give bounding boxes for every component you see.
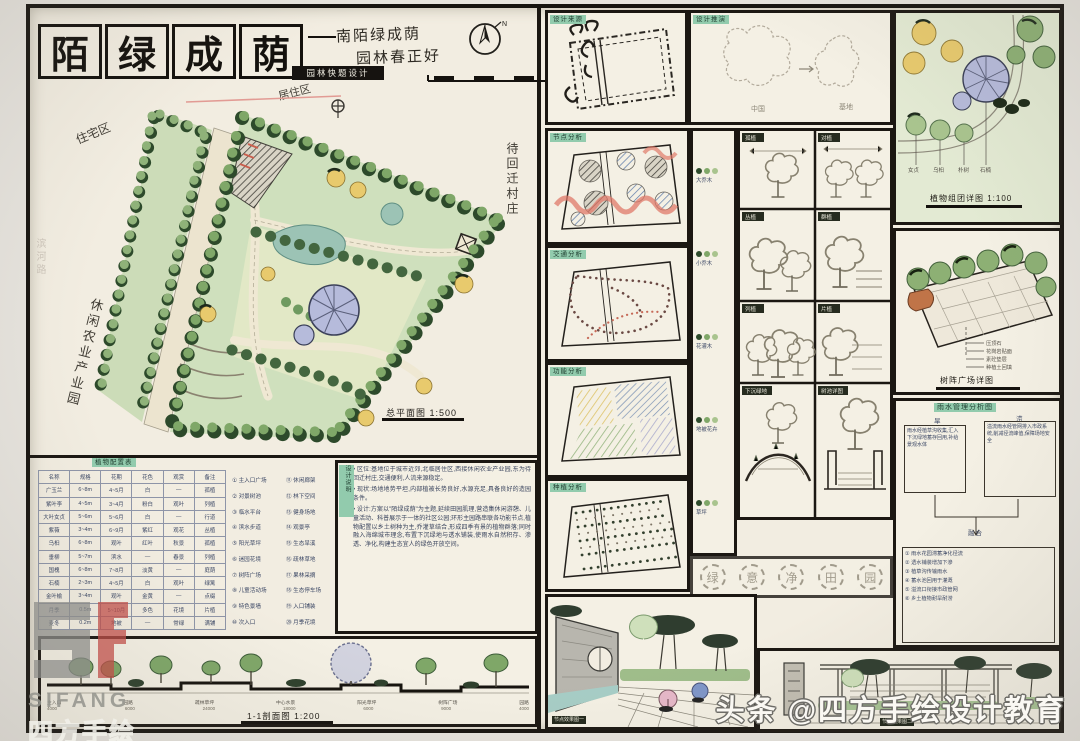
legend-item: ⑭ 观景亭 [286,523,334,531]
svg-text:树池详图: 树池详图 [821,387,844,395]
plant-table-row: 国槐6~8m7~8月淡黄—庭荫 [39,563,226,576]
analysis-panel-planting: 种植分析 [545,478,690,592]
title-char-2: 绿 [105,24,169,79]
analysis-panel-nodes: 节点分析 [545,128,690,245]
tree-study-grid: 孤植 对植 丛植 群植 列植 片植 下沉绿地 树池详图 [737,128,893,520]
title-dash [308,36,336,38]
plant-key-label: 大乔木 [696,176,731,184]
plant-table-row: 紫薇3~4m6~9月紫红观花丛植 [39,524,226,537]
svg-text:住宅区: 住宅区 [74,119,113,146]
plant-table-row: 紫叶李4~5m3~4月粉白观叶列植 [39,497,226,510]
plant-table-title: 植物配置表 [92,458,136,467]
svg-text:对植: 对植 [821,134,833,142]
design-source-panel: 设计来源 [545,10,688,125]
keyword-4: 田 [818,564,844,590]
svg-text:乌桕: 乌桕 [933,166,945,174]
legend-list-left: ① 主入口广场② 对景树池③ 临水平台④ 滨水步道⑤ 阳光草坪⑥ 迷园花境⑦ 树… [232,476,282,626]
plant-key-label: 小乔木 [696,259,731,267]
plant-key-group: 小乔木 [696,251,731,267]
keyword-3: 净 [778,564,804,590]
axon-title: 树阵广场详图 [940,375,994,386]
master-plan: 住宅区 [36,92,541,454]
legend-item: ④ 滨水步道 [232,523,282,531]
flow-arrows [896,495,1059,555]
svg-text:石楠: 石楠 [980,166,992,174]
sifang-logo-cn: 四方手绘 [28,713,178,741]
design-notes-panel: 设计说明 • 区位:基地位于城市近郊,北临居住区,西接休闲农业产业园,东为待回迁… [335,460,538,634]
legend-item: ① 主入口广场 [232,476,282,484]
plant-detail-underline [926,205,1022,208]
flow-title: 雨水管理分析图 [934,403,996,412]
design-evolution-panel: 设计推演 中国 基地 [688,10,893,125]
section-label: 中心水景 [276,699,295,706]
plant-detail-panel: 女贞 乌桕 朴树 石楠 植物组团详图 1:100 [893,10,1062,225]
sifang-logo-text: SIFANG [28,689,178,713]
board-photo: 陌 绿 成 荫 南陌绿成荫 园林春正好 园林快题设计 居住区 N [0,0,1080,741]
flow-panel: 雨水管理分析图 旱 涝 雨水经植草沟收集,汇入下沉绿地蓄存回用,补给景观水体 溢… [893,398,1062,648]
legend-item: ⑨ 特色景墙 [232,602,282,610]
legend-list-right: ⑪ 休闲廊架⑫ 林下空间⑬ 健身场地⑭ 观景亭⑮ 生态旱溪⑯ 疏林草地⑰ 果林采… [286,476,334,626]
design-note: • 区位:基地位于城市近郊,北临居住区,西接休闲农业产业园,东为待回迁村庄,交通… [353,466,531,483]
sifang-logo-mark [28,596,132,684]
plant-table-row: 大叶女贞5~6m5~6月白—行道 [39,510,226,523]
plant-key-strip: 大乔木小乔木花灌木地被花卉草坪 [690,128,737,556]
flow-note: ② 透水铺装增加下渗 [905,559,1052,568]
drawing-board: 陌 绿 成 荫 南陌绿成荫 园林春正好 园林快题设计 居住区 N [26,4,1064,733]
flow-notes-box: ① 雨水花园滞蓄净化径流② 透水铺装增加下渗③ 植草沟传输雨水④ 蓄水池回用于灌… [902,547,1055,643]
legend-item: ⑥ 迷园花境 [232,555,282,563]
legend-item: ⑰ 果林采摘 [286,571,334,579]
svg-text:花岗岩贴面: 花岗岩贴面 [986,347,1012,355]
analysis-panel-function: 功能分析 [545,362,690,478]
legend-item: ⑱ 生态停车场 [286,586,334,594]
design-evolution-tag: 设计推演 [693,15,729,24]
plant-key-group: 地被花卉 [696,417,731,433]
perspective-left-tag: 节点效果图一 [552,716,586,724]
title-char-1: 陌 [38,24,102,79]
section-dim: 4000 [519,706,529,711]
planting-diagram [548,481,687,589]
title-char-3: 成 [172,24,236,79]
analysis-tag-planting: 种植分析 [550,483,586,492]
plant-key-label: 花灌木 [696,342,731,350]
section-label: 园路 [519,699,529,706]
flow-box-b: 溢流雨水经管网排入市政系统,削减径流峰值,保障场地安全 [984,421,1056,497]
section-dim: 9000 [441,706,451,711]
plant-table-row: 石楠2~3m4~5月白观叶绿篱 [39,577,226,590]
section-label: 树阵广场 [438,699,457,706]
plant-table-header: 花期 [101,471,132,484]
legend-item: ⑧ 儿童活动场 [232,586,282,594]
plant-table-header: 备注 [194,471,225,484]
flow-note: ⑤ 溢流口衔接市政管网 [905,586,1052,595]
keyword-5: 园 [857,564,883,590]
map-outlines: 中国 基地 [691,13,890,122]
legend-item: ⑲ 入口铺装 [286,602,334,610]
plant-table-row: 垂柳5~7m滨水—春景列植 [39,550,226,563]
svg-text:中国: 中国 [751,104,765,113]
design-note: • 现状:场地地势平坦,内部植被长势良好,水源充足,具备良好的造园条件。 [353,486,531,503]
legend-item: ⑳ 月季花境 [286,618,334,626]
subtitle-line1: 南陌绿成荫 [336,23,422,47]
flow-merge: 融合 [968,527,983,537]
plan-title-underline [382,418,464,421]
legend-item: ⑫ 林下空间 [286,492,334,500]
pattern-sketch [548,13,685,122]
svg-text:种植土回填: 种植土回填 [986,363,1012,371]
north-compass-icon: N [466,18,510,60]
plant-table-header: 观赏 [163,471,194,484]
keyword-strip: 绿 意 净 田 园 [690,556,893,598]
svg-text:下沉绿地: 下沉绿地 [745,387,768,395]
design-note: • 设计:方案以"陌绿成荫"为主题,延续田园肌理,营造集休闲游憩、儿童活动、科普… [353,506,531,549]
plant-table-header: 花色 [132,471,163,484]
legend-item: ⑪ 休闲廊架 [286,476,334,484]
flow-note: ③ 植草沟传输雨水 [905,568,1052,577]
plan-label-right: 待回迁村庄 [504,142,521,282]
legend-item: ⑦ 树阵广场 [232,571,282,579]
section-dim: 6000 [363,706,373,711]
scale-bar [426,72,560,86]
svg-text:素砼垫层: 素砼垫层 [986,355,1007,363]
legend-item: ⑩ 次入口 [232,618,282,626]
flow-note: ⑥ 乡土植物耐旱耐涝 [905,595,1052,604]
watermark-credit: 头条 @四方手绘设计教育 [716,687,1066,729]
legend-item: ⑤ 阳光草坪 [232,539,282,547]
plant-key-label: 草坪 [696,508,731,516]
section-title-underline [241,721,333,724]
plant-table-row: 广玉兰6~8m4~5月白—孤植 [39,484,226,497]
tree-study-sketches: 孤植 对植 丛植 群植 列植 片植 下沉绿地 树池详图 [740,131,890,517]
analysis-tag-nodes: 节点分析 [550,133,586,142]
flow-note: ④ 蓄水池回用于灌溉 [905,577,1052,586]
keyword-2: 意 [739,564,765,590]
board-title: 陌 绿 成 荫 [38,24,303,79]
plan-label-road: 滨河路 [32,238,47,328]
subtitle-line2: 园林春正好 [356,45,442,69]
svg-text:基地: 基地 [839,102,853,111]
plant-table-row: 乌桕6~8m观叶红叶秋景孤植 [39,537,226,550]
svg-text:丛植: 丛植 [745,213,757,221]
plant-detail-title: 植物组团详图 1:100 [930,193,1012,204]
sifang-logo: SIFANG 四方手绘 [28,596,178,736]
svg-text:群植: 群植 [821,213,833,221]
legend-item: ⑬ 健身场地 [286,508,334,516]
flow-label-a: 旱 [934,415,941,425]
svg-text:朴树: 朴树 [958,166,970,174]
circulation-diagram [548,248,687,359]
design-source-tag: 设计来源 [550,15,586,24]
legend-item: ② 对景树池 [232,492,282,500]
svg-text:压顶石: 压顶石 [986,340,1002,347]
function-diagram [548,365,687,475]
svg-text:女贞: 女贞 [908,166,920,174]
plant-table-header: 名称 [39,471,70,484]
plant-key-group: 大乔木 [696,168,731,184]
legend-item: ③ 临水平台 [232,508,282,516]
svg-text:列植: 列植 [745,305,757,313]
plant-key-group: 花灌木 [696,334,731,350]
nodes-diagram [548,131,687,242]
svg-text:片植: 片植 [821,305,833,313]
plant-detail-plan: 女贞 乌桕 朴树 石楠 [896,13,1059,222]
keyword-1: 绿 [700,564,726,590]
axon-detail-panel: 压顶石 花岗岩贴面 素砼垫层 种植土回填 树阵广场详图 [893,228,1062,395]
svg-text:N: N [502,21,507,28]
analysis-panel-circulation: 交通分析 [545,245,690,362]
section-dim: 24000 [203,706,216,711]
flow-note: ① 雨水花园滞蓄净化径流 [905,550,1052,559]
plant-table-header: 规格 [70,471,101,484]
legend-item: ⑯ 疏林草地 [286,555,334,563]
plant-key-label: 地被花卉 [696,425,731,433]
analysis-tag-function: 功能分析 [550,367,586,376]
axon-title-underline [936,387,1020,390]
flow-box-a: 雨水经植草沟收集,汇入下沉绿地蓄存回用,补给景观水体 [904,425,966,493]
analysis-tag-circulation: 交通分析 [550,250,586,259]
section-label: 阳光草坪 [357,699,376,706]
plant-key-group: 草坪 [696,500,731,516]
section-label: 疏林草坪 [195,699,214,706]
title-stamp: 园林快题设计 [292,66,384,80]
svg-text:孤植: 孤植 [745,134,757,142]
axon-detail-drawing: 压顶石 花岗岩贴面 素砼垫层 种植土回填 [896,231,1059,392]
legend-item: ⑮ 生态旱溪 [286,539,334,547]
design-notes-tag: 设计说明 [339,465,354,517]
